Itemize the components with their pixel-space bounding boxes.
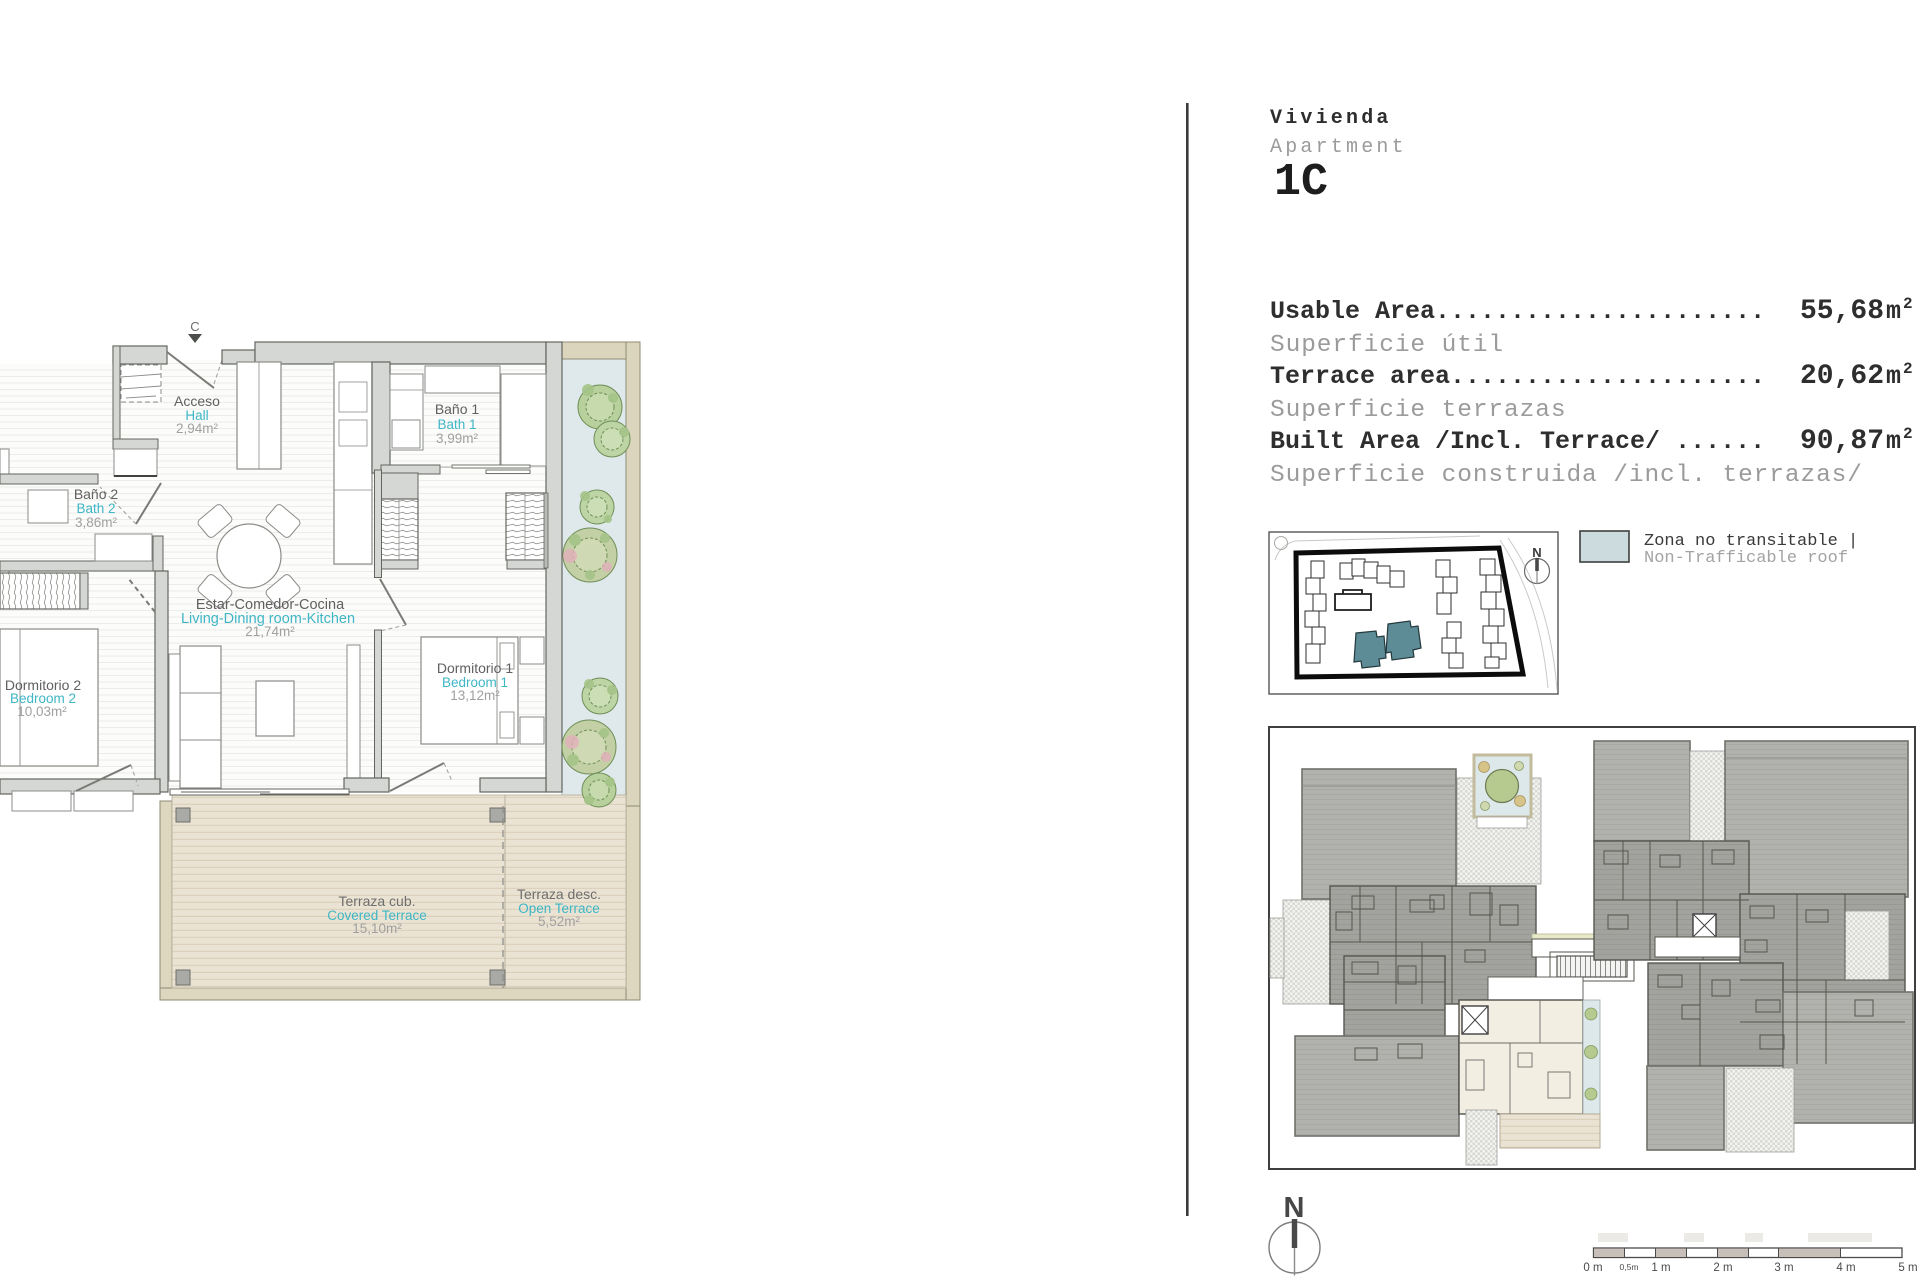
svg-text:10,03m²: 10,03m² xyxy=(17,704,67,719)
svg-text:2: 2 xyxy=(1903,295,1913,313)
svg-text:Superficie construida /incl. t: Superficie construida /incl. terrazas/ xyxy=(1270,462,1863,489)
svg-text:2: 2 xyxy=(1903,425,1913,443)
svg-text:2 m: 2 m xyxy=(1713,1262,1732,1274)
svg-text:55,68: 55,68 xyxy=(1800,296,1884,327)
svg-text:5 m: 5 m xyxy=(1898,1262,1917,1274)
svg-text:Acceso: Acceso xyxy=(174,393,220,409)
svg-text:2: 2 xyxy=(1903,360,1913,378)
svg-text:Vivienda: Vivienda xyxy=(1270,107,1392,130)
svg-text:Baño 1: Baño 1 xyxy=(435,401,480,417)
svg-text:Terraza cub.: Terraza cub. xyxy=(338,893,415,909)
svg-text:Terraza desc.: Terraza desc. xyxy=(517,886,601,902)
svg-text:m: m xyxy=(1886,297,1901,326)
svg-text:Built Area /Incl. Terrace/ ...: Built Area /Incl. Terrace/ ...... xyxy=(1270,427,1765,456)
svg-text:3,99m²: 3,99m² xyxy=(436,431,479,446)
svg-text:Superficie terrazas: Superficie terrazas xyxy=(1270,397,1566,424)
svg-text:2,94m²: 2,94m² xyxy=(176,421,219,436)
svg-text:1 m: 1 m xyxy=(1651,1262,1670,1274)
svg-text:21,74m²: 21,74m² xyxy=(245,624,295,639)
svg-text:4 m: 4 m xyxy=(1836,1262,1855,1274)
svg-text:Dormitorio 1: Dormitorio 1 xyxy=(437,660,513,676)
svg-text:1C: 1C xyxy=(1274,157,1328,208)
svg-text:3,86m²: 3,86m² xyxy=(75,515,118,530)
svg-text:Apartment: Apartment xyxy=(1270,136,1407,159)
svg-text:13,12m²: 13,12m² xyxy=(450,688,500,703)
svg-text:N: N xyxy=(1532,545,1541,560)
svg-text:0,5m: 0,5m xyxy=(1620,1262,1639,1272)
svg-text:20,62: 20,62 xyxy=(1800,361,1884,392)
svg-text:C: C xyxy=(190,319,199,334)
svg-text:0 m: 0 m xyxy=(1583,1262,1602,1274)
svg-text:Terrace area..................: Terrace area..................... xyxy=(1270,362,1765,391)
svg-text:15,10m²: 15,10m² xyxy=(352,921,402,936)
svg-text:m: m xyxy=(1886,427,1901,456)
svg-text:90,87: 90,87 xyxy=(1800,426,1884,457)
svg-text:Bath 2: Bath 2 xyxy=(76,501,115,516)
svg-text:Usable Area...................: Usable Area...................... xyxy=(1270,297,1765,326)
svg-text:Baño 2: Baño 2 xyxy=(74,486,119,502)
svg-text:m: m xyxy=(1886,362,1901,391)
svg-text:3 m: 3 m xyxy=(1774,1262,1793,1274)
svg-text:5,52m²: 5,52m² xyxy=(538,914,581,929)
svg-text:Superficie útil: Superficie útil xyxy=(1270,332,1504,359)
svg-text:Non-Trafficable roof: Non-Trafficable roof xyxy=(1644,549,1848,568)
svg-text:Bath 1: Bath 1 xyxy=(437,417,476,432)
